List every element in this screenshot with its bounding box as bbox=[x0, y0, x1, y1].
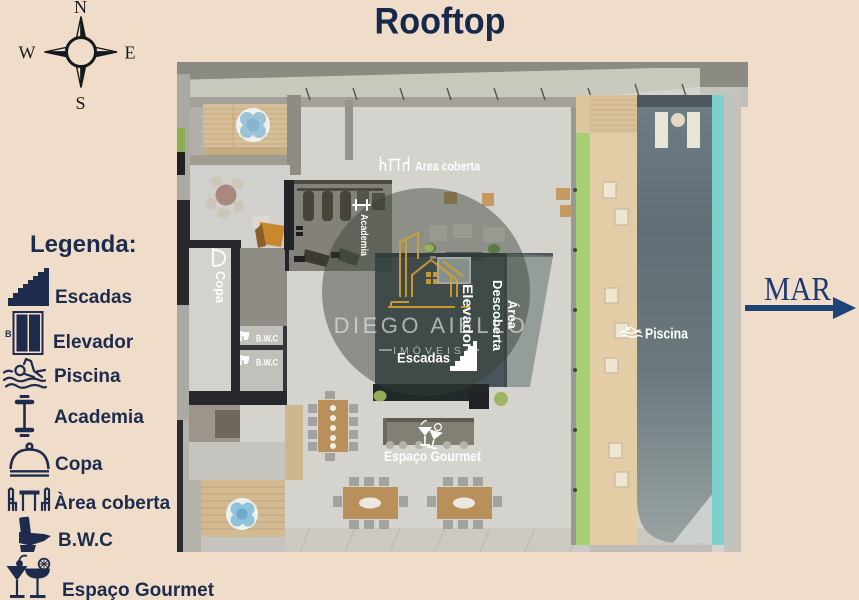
svg-text:N: N bbox=[74, 0, 87, 17]
svg-text:Escadas: Escadas bbox=[55, 287, 132, 308]
svg-text:Area coberta: Area coberta bbox=[415, 159, 481, 174]
svg-text:Àrea coberta: Àrea coberta bbox=[54, 492, 171, 514]
svg-text:Descoberta: Descoberta bbox=[490, 280, 505, 352]
svg-text:Área: Área bbox=[505, 300, 520, 330]
svg-text:Academia: Academia bbox=[54, 407, 144, 428]
svg-text:Piscina: Piscina bbox=[645, 327, 689, 343]
svg-text:Espaço Gourmet: Espaço Gourmet bbox=[384, 448, 481, 464]
svg-text:Rooftop: Rooftop bbox=[375, 1, 506, 42]
svg-text:Espaço Gourmet: Espaço Gourmet bbox=[62, 580, 215, 600]
svg-text:Piscina: Piscina bbox=[54, 366, 121, 387]
svg-text:MAR: MAR bbox=[764, 271, 831, 308]
svg-text:W: W bbox=[19, 43, 36, 63]
svg-text:Copa: Copa bbox=[55, 454, 103, 475]
svg-text:B: B bbox=[5, 329, 12, 339]
svg-text:E: E bbox=[125, 43, 136, 63]
svg-text:B.W.C: B.W.C bbox=[58, 530, 113, 551]
svg-text:Escadas: Escadas bbox=[397, 351, 450, 366]
svg-text:Copa: Copa bbox=[213, 271, 228, 304]
svg-text:B.W.C: B.W.C bbox=[256, 334, 278, 344]
svg-text:Academia: Academia bbox=[358, 214, 370, 256]
svg-text:Legenda:: Legenda: bbox=[30, 231, 137, 258]
svg-text:S: S bbox=[75, 93, 85, 113]
svg-text:B.W.C: B.W.C bbox=[256, 358, 278, 368]
svg-text:Elevador: Elevador bbox=[53, 332, 134, 353]
svg-text:Elevador: Elevador bbox=[460, 284, 475, 350]
